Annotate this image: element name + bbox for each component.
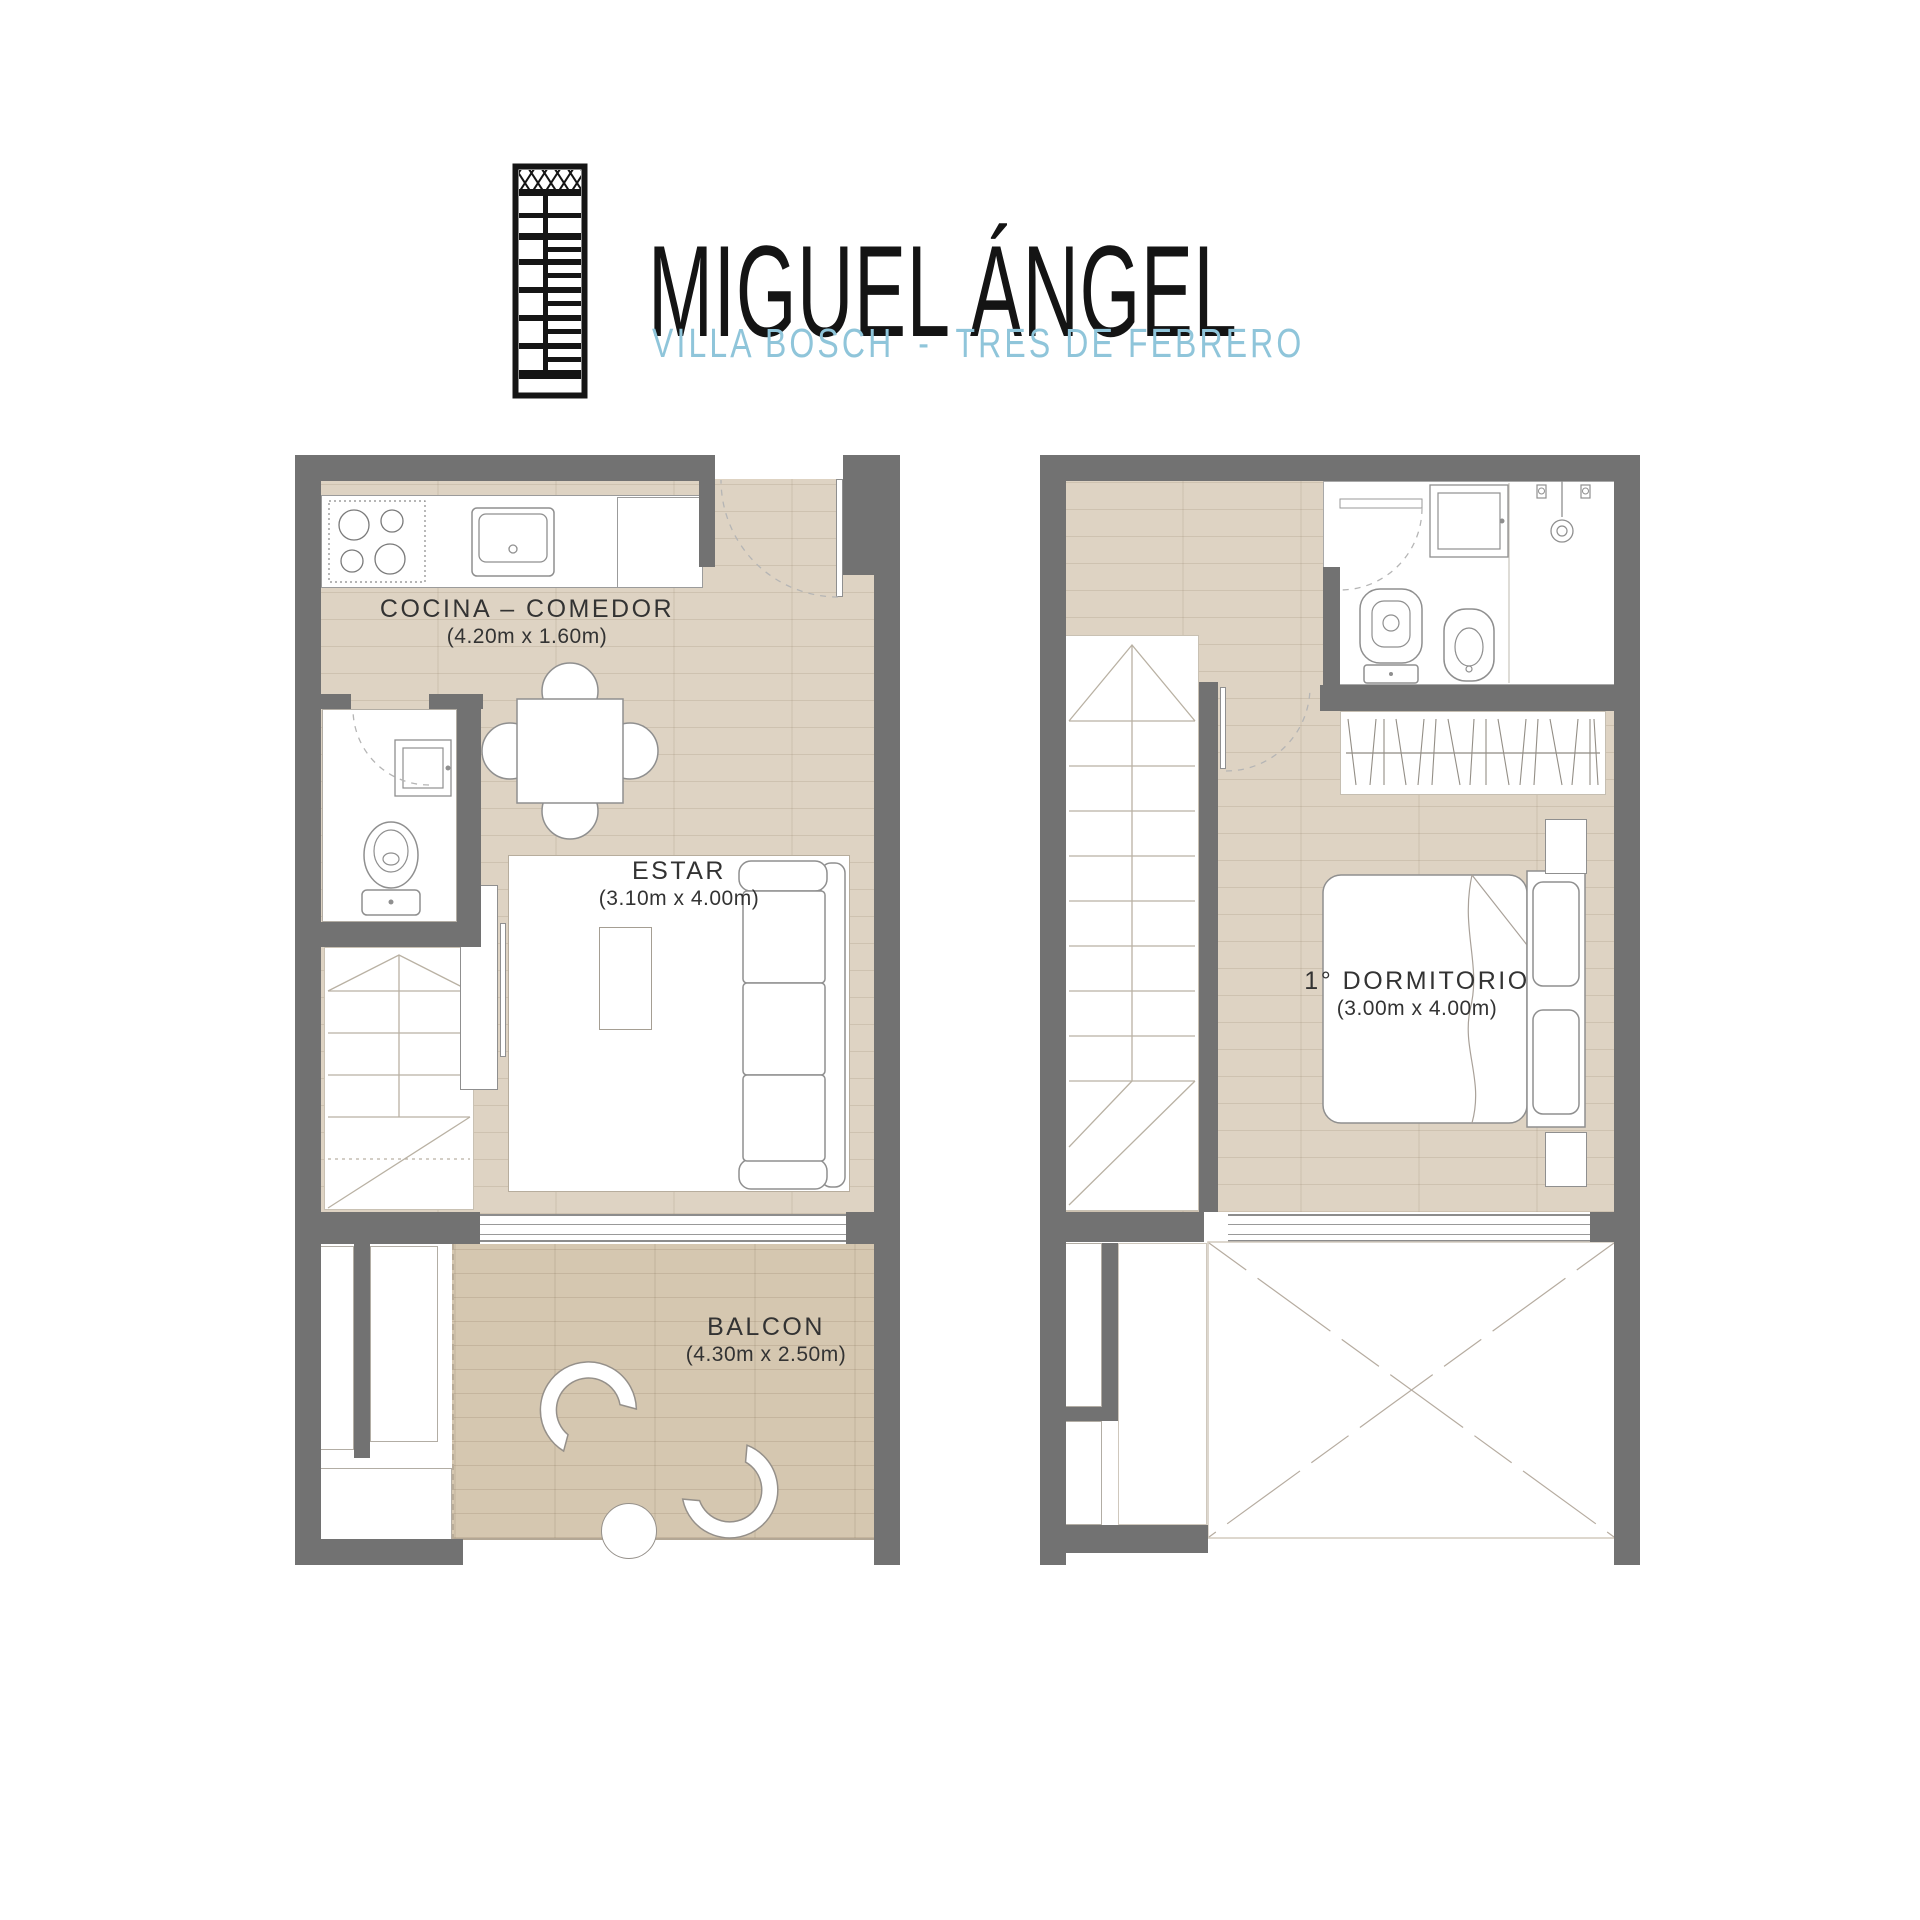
bathroom-fixtures (1340, 481, 1616, 685)
door-leaf (1340, 499, 1422, 508)
nightstand-icon (1545, 819, 1587, 874)
page-subtitle: VILLA BOSCH - TRES DE FEBRERO (652, 320, 1304, 367)
wall-bottom-left (1040, 1525, 1208, 1553)
wall-left (1040, 455, 1066, 1565)
wall-stairs-bedroom (1199, 682, 1218, 1212)
coffee-table-icon (599, 927, 652, 1030)
wall-bath-bottom (1320, 685, 1616, 711)
vanity-icon (1430, 485, 1508, 557)
wall-bottom (295, 1539, 463, 1565)
shower-icon (1537, 481, 1590, 542)
wall-stub (1065, 1407, 1102, 1421)
sink-icon (471, 507, 555, 577)
utility-box (318, 1246, 354, 1450)
wall-left (295, 455, 321, 1565)
building-elevation-icon (512, 163, 588, 399)
plan-upper-floor: 1° DORMITORIO (3.00m x 4.00m) (1040, 455, 1640, 1565)
utility-box (1065, 1243, 1102, 1407)
bidet-icon (1444, 609, 1494, 681)
wall-window-right (1590, 1212, 1616, 1242)
tv-icon (500, 923, 506, 1057)
toilet-icon (1360, 589, 1422, 683)
nightstand-icon (1545, 1132, 1587, 1187)
utility-box (1118, 1243, 1207, 1525)
room-label-dormitorio: 1° DORMITORIO (3.00m x 4.00m) (1304, 967, 1529, 1021)
wall-right (1614, 455, 1640, 1565)
wall-bath-bottom (321, 922, 457, 947)
wall-balcony-right (846, 1212, 874, 1244)
bedroom-door-swing-arc (1226, 687, 1310, 771)
wall-kitchen-stub (699, 481, 715, 567)
wall-entry-corner (843, 455, 900, 575)
wall-balcony-left (321, 1212, 480, 1244)
balcony-window (480, 1214, 846, 1242)
wall-stub (354, 1244, 370, 1458)
bedroom-window (1228, 1214, 1590, 1242)
utility-box (1065, 1421, 1102, 1525)
fridge-icon (617, 497, 703, 588)
wall-top (295, 455, 715, 481)
plan-unit-floor: COCINA – COMEDOR (4.20m x 1.60m) ESTAR (… (295, 455, 900, 1565)
utility-box (319, 1468, 452, 1540)
utility-box (370, 1246, 438, 1442)
room-label-cocina: COCINA – COMEDOR (4.20m x 1.60m) (380, 595, 674, 649)
toilet-icon (362, 822, 420, 915)
room-label-estar: ESTAR (3.10m x 4.00m) (599, 857, 759, 911)
dining-table-icon (483, 661, 657, 841)
stairs-icon (324, 947, 474, 1210)
balcony-table-icon (601, 1503, 657, 1559)
void-cross (1207, 1241, 1616, 1539)
wall-stub (1102, 1243, 1118, 1421)
bathroom-door-swing-arc (353, 709, 431, 787)
room-label-balcon: BALCON (4.30m x 2.50m) (686, 1313, 846, 1367)
closet-icon (1340, 711, 1606, 795)
entry-door-swing-arc (721, 480, 839, 598)
wall-bath-right (457, 694, 481, 947)
stove-icon (327, 499, 427, 584)
stairs-icon (1065, 635, 1199, 1211)
wall-top (1040, 455, 1640, 481)
floorplan-flyer: MIGUEL ÁNGEL VILLA BOSCH - TRES DE FEBRE… (0, 0, 1920, 1920)
wall-bedroom-bottom (1064, 1212, 1204, 1242)
wall-right (874, 573, 900, 1565)
wall-bath-left (1323, 567, 1340, 685)
wall-bath-top-a (321, 694, 351, 709)
